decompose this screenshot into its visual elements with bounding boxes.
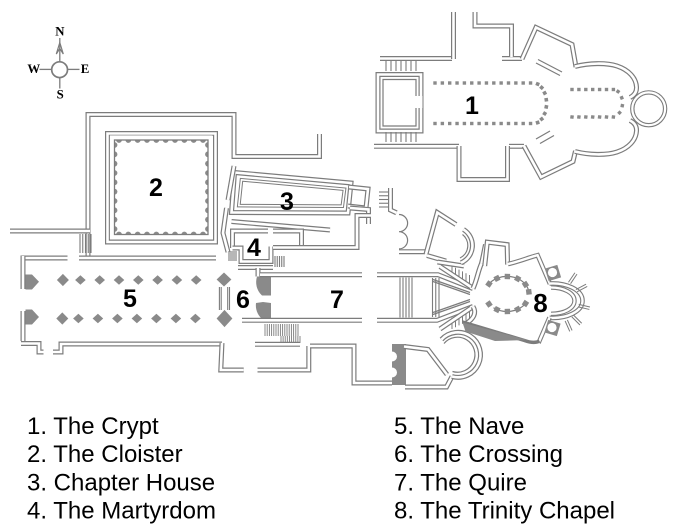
svg-text:5. The Nave: 5. The Nave [394, 413, 524, 440]
svg-text:6: 6 [236, 286, 250, 314]
svg-text:7. The Quire: 7. The Quire [394, 469, 527, 496]
svg-text:S: S [57, 87, 64, 101]
svg-text:2. The Cloister: 2. The Cloister [27, 441, 183, 468]
svg-text:4. The Martyrdom: 4. The Martyrdom [27, 498, 216, 525]
svg-text:2: 2 [149, 174, 163, 202]
svg-text:8. The Trinity Chapel: 8. The Trinity Chapel [394, 498, 615, 525]
svg-text:3. Chapter House: 3. Chapter House [27, 469, 215, 496]
svg-text:W: W [27, 62, 40, 76]
svg-text:6. The Crossing: 6. The Crossing [394, 441, 563, 468]
svg-text:1. The Crypt: 1. The Crypt [27, 413, 159, 440]
svg-text:4: 4 [247, 234, 261, 262]
svg-text:7: 7 [330, 286, 344, 314]
svg-text:8: 8 [533, 288, 547, 318]
svg-text:1: 1 [465, 92, 479, 120]
svg-text:N: N [55, 24, 65, 38]
svg-text:3: 3 [280, 188, 294, 216]
svg-text:E: E [81, 62, 90, 76]
svg-text:5: 5 [123, 285, 137, 313]
